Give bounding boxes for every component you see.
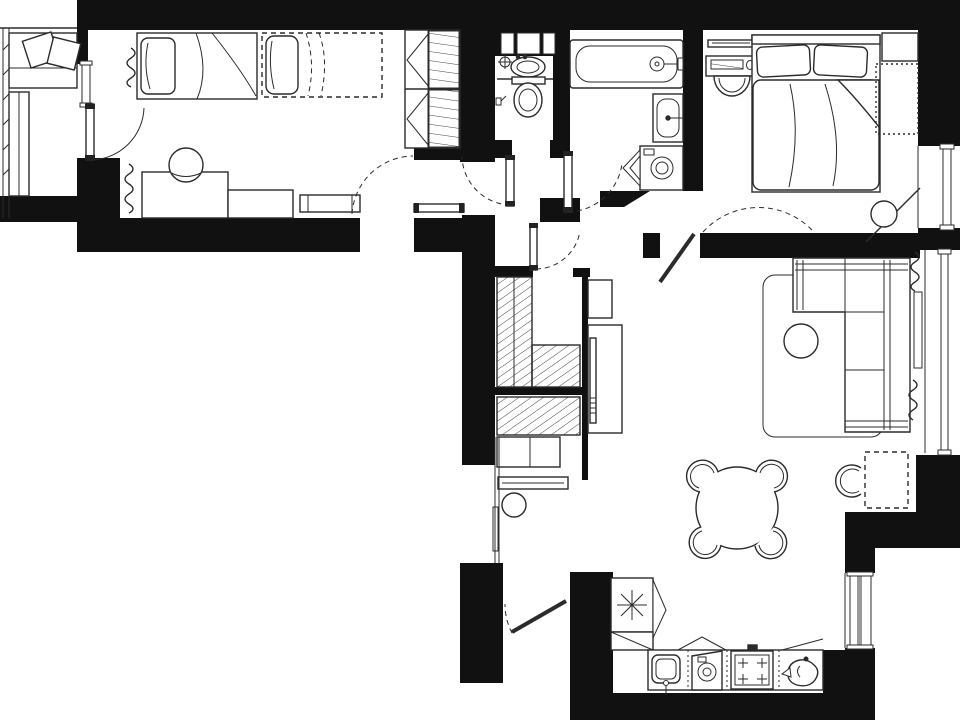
wardrobe-hatched <box>497 397 580 435</box>
room-bathroom <box>563 40 683 212</box>
kids-desk <box>142 172 293 218</box>
hall-cabinets <box>497 437 560 467</box>
kids-door-swing-arc <box>352 156 413 214</box>
double-bed <box>752 35 880 192</box>
wall-balcony-bottom <box>0 196 77 222</box>
wc-niche-3 <box>543 33 555 54</box>
wc-niche-1 <box>501 33 514 54</box>
wall-right-pier <box>918 228 960 250</box>
wall-kids-left-pier <box>77 158 120 252</box>
wall-bathroom-bottom-chamfer <box>600 191 650 207</box>
wall-under-wardrobe <box>414 148 460 160</box>
wall-closet-divider <box>462 387 588 395</box>
wall-bathroom-right <box>683 0 703 191</box>
round-mirror <box>502 493 526 517</box>
wall-corridor-left <box>462 215 495 465</box>
room-kids-bedroom <box>125 30 464 218</box>
kitchen-window <box>845 572 873 649</box>
wall-living-bottom-right <box>916 455 960 513</box>
wall-bedroom-bottom <box>700 233 920 258</box>
cosmetics-tray <box>711 60 743 69</box>
wall-right-band <box>845 512 960 548</box>
bath-washbasin <box>653 94 683 142</box>
closet-door-swing-arc <box>536 231 580 269</box>
toilet <box>512 77 545 117</box>
radiator-icon <box>127 48 135 87</box>
closet-door <box>529 223 580 270</box>
bedroom-door-leaf <box>660 234 694 282</box>
upper-cabinet-fold <box>678 637 726 650</box>
washing-machine <box>623 146 683 190</box>
balcony-door <box>85 104 144 160</box>
balcony-glazing <box>3 28 9 218</box>
wall-hall-block <box>540 198 580 222</box>
room-living <box>588 249 951 455</box>
headboard <box>752 35 880 44</box>
wc-niches <box>501 33 555 54</box>
wall-kitchen-right <box>823 650 875 695</box>
closet-hatched-low <box>532 345 580 387</box>
single-bed-2 <box>262 33 382 97</box>
balcony-door-swing-arc <box>92 108 144 160</box>
kids-room-door <box>352 156 464 214</box>
floor-plan-canvas <box>0 0 960 720</box>
apartment-floor-plan <box>0 0 960 720</box>
stove-handle <box>748 645 757 649</box>
wall-bathroom-left <box>553 0 570 150</box>
bedroom-window <box>918 144 954 230</box>
kids-bench <box>300 195 360 212</box>
room-balcony <box>0 28 81 218</box>
tub-drain <box>650 57 664 71</box>
kids-wardrobe <box>405 30 460 148</box>
bathtub <box>570 40 683 88</box>
living-window <box>925 249 951 455</box>
window-glass <box>857 575 862 646</box>
tv <box>590 338 596 423</box>
entry-console <box>493 477 568 551</box>
bathroom-door-leaf <box>564 152 572 212</box>
dishwasher <box>692 651 722 690</box>
wall-sprayer-icon <box>496 96 506 105</box>
balcony-pillow-2 <box>47 37 81 70</box>
wall-closet-top <box>462 266 533 277</box>
entrance-door-leaf <box>512 601 566 632</box>
wc-washbasin <box>511 57 545 77</box>
windowsill-console <box>914 292 922 368</box>
shelves-hatch <box>429 90 459 147</box>
pillow <box>756 45 810 78</box>
corner-cabinet <box>611 632 653 650</box>
wall-kids-bottom-east <box>414 218 470 252</box>
wall-top-right-corner <box>918 0 960 146</box>
entrance-door <box>505 601 566 633</box>
wall-kids-bottom-west <box>120 218 360 252</box>
dashed-wardrobe-zone <box>876 64 918 134</box>
kids-door-leaf <box>414 204 464 212</box>
shelf <box>588 280 612 318</box>
desk-chair <box>169 148 203 182</box>
wall-wardrobe-wc <box>460 0 495 162</box>
extra-chair <box>836 465 861 497</box>
nightstand <box>882 33 918 61</box>
kids-balcony-window <box>80 61 92 107</box>
wall-tv-stub <box>573 268 590 277</box>
wall-entry-left <box>460 563 503 683</box>
hallway <box>493 223 580 633</box>
radiator-icon <box>125 164 133 213</box>
wall-kitchen-left <box>570 572 613 720</box>
pillow <box>813 45 867 78</box>
stove <box>731 645 773 689</box>
shelves-hatch <box>429 31 459 88</box>
wall-tv-thin <box>582 268 588 480</box>
open-door-fold <box>623 150 640 186</box>
planned-cabinet-dashed <box>865 452 908 508</box>
upper-cabinet-fold <box>782 639 823 650</box>
wall-bottom-band <box>570 693 875 720</box>
wc-door-swing-arc <box>462 157 510 205</box>
wall-kitchen-window-top <box>845 548 875 573</box>
vanity <box>706 40 758 96</box>
door-fold <box>653 580 666 638</box>
corner-plant <box>871 201 897 227</box>
single-bed-1 <box>137 33 257 99</box>
fridge <box>611 578 666 638</box>
pouf <box>784 324 818 358</box>
snowflake-icon <box>617 590 647 620</box>
wall-top-band <box>88 0 920 30</box>
wall-bedroom-stub <box>643 233 660 258</box>
wc-door-leaf <box>506 156 514 206</box>
bedroom-door-swing-arc <box>703 208 812 232</box>
closet-door-leaf <box>530 224 537 270</box>
entrance-door-swing-arc <box>505 604 512 633</box>
wc-door <box>462 155 515 206</box>
balcony-door-leaf <box>86 104 94 160</box>
wc-niche-2 <box>517 33 540 54</box>
tv-zone <box>588 280 622 433</box>
